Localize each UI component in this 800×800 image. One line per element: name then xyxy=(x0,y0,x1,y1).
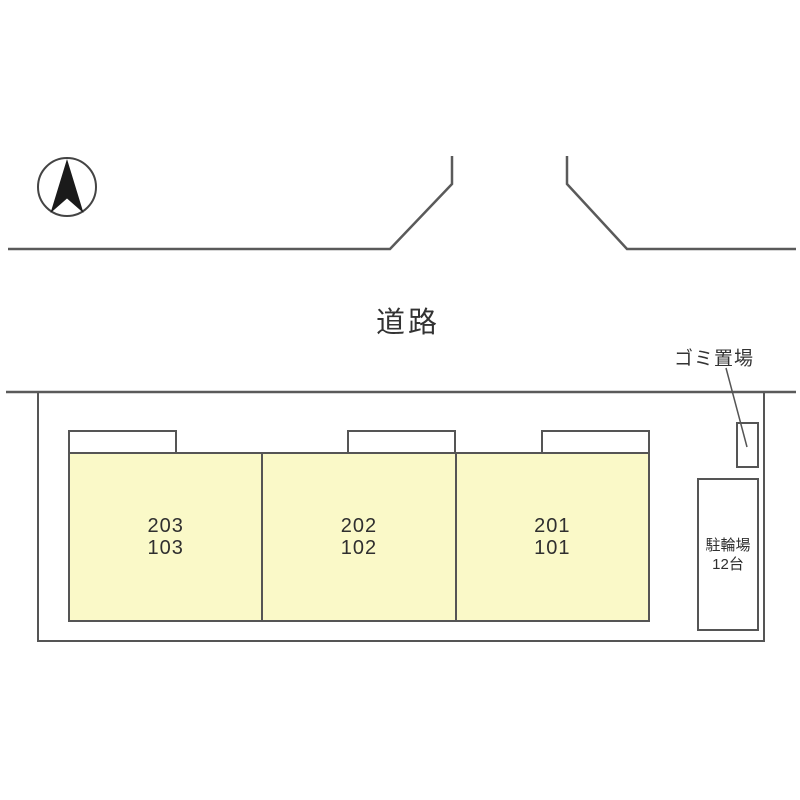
porch-unit-203 xyxy=(68,430,177,452)
unit-lower-number: 102 xyxy=(341,537,377,559)
bike-parking-box: 駐輪場 12台 xyxy=(697,478,759,631)
bike-parking-capacity: 12台 xyxy=(712,555,744,574)
building-outline: 203 103 202 102 201 101 xyxy=(68,452,650,622)
north-arrow-icon xyxy=(38,158,96,216)
unit-lower-number: 103 xyxy=(147,537,183,559)
unit-upper-number: 201 xyxy=(534,515,570,537)
garbage-area-box xyxy=(736,422,759,468)
bike-parking-name: 駐輪場 xyxy=(705,536,750,555)
site-plan-canvas: 道路 ゴミ置場 203 103 202 102 201 101 駐 xyxy=(0,0,800,800)
site-plan-linework xyxy=(0,0,800,800)
unit-label: 201 101 xyxy=(534,515,570,559)
road-edge-right xyxy=(567,156,796,249)
unit-upper-number: 203 xyxy=(147,515,183,537)
unit-203-103: 203 103 xyxy=(70,454,261,620)
unit-label: 202 102 xyxy=(341,515,377,559)
porch-unit-202 xyxy=(347,430,456,452)
unit-upper-number: 202 xyxy=(341,515,377,537)
unit-201-101: 201 101 xyxy=(455,454,648,620)
road-label: 道路 xyxy=(376,299,440,341)
garbage-area-label: ゴミ置場 xyxy=(674,344,754,371)
unit-202-102: 202 102 xyxy=(261,454,454,620)
unit-lower-number: 101 xyxy=(534,537,570,559)
porch-unit-201 xyxy=(541,430,650,452)
unit-label: 203 103 xyxy=(147,515,183,559)
